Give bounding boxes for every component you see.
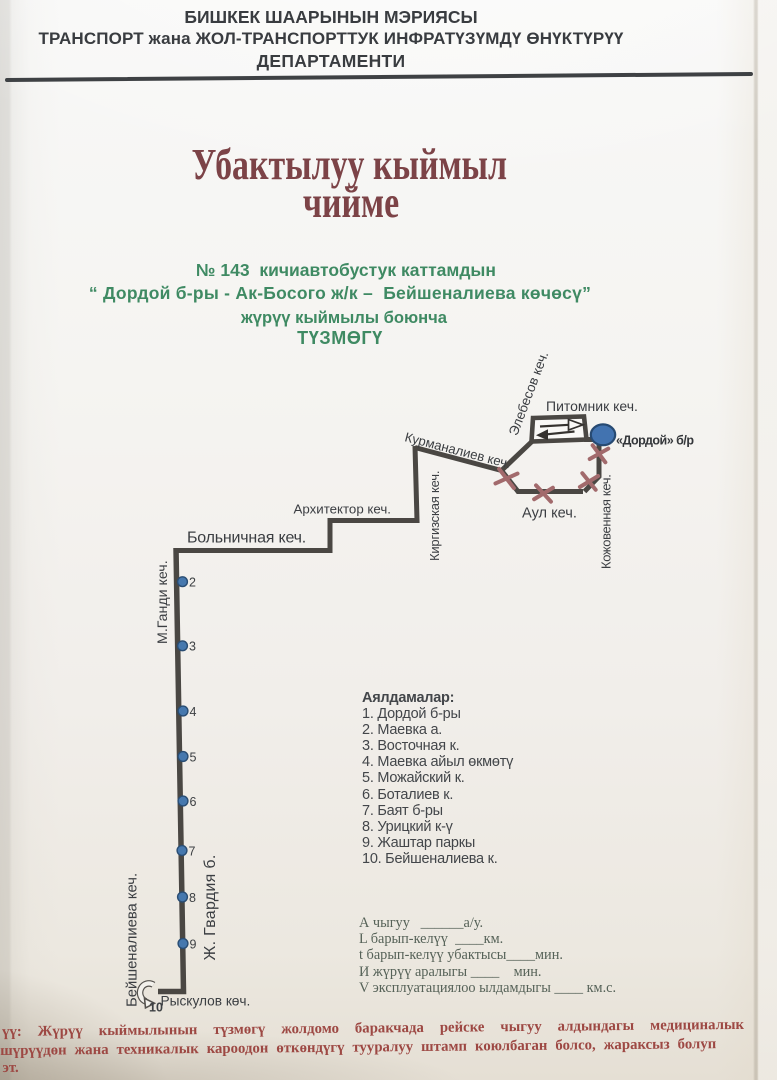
svg-text:Аул кеч.: Аул кеч. xyxy=(522,506,577,522)
svg-text:7: 7 xyxy=(189,845,196,859)
svg-text:10: 10 xyxy=(149,1001,163,1015)
svg-text:Архитектор кеч.: Архитектор кеч. xyxy=(294,502,391,517)
svg-text:Рыскулов көч.: Рыскулов көч. xyxy=(161,994,251,1009)
svg-text:М.Ганди кеч.: М.Ганди кеч. xyxy=(155,560,171,644)
svg-text:Ж. Гвардия б.: Ж. Гвардия б. xyxy=(202,854,219,960)
svg-text:9: 9 xyxy=(190,938,197,952)
svg-text:Бейшеналиева кеч.: Бейшеналиева кеч. xyxy=(125,873,141,1007)
svg-text:5: 5 xyxy=(190,751,197,765)
svg-text:8: 8 xyxy=(189,891,196,905)
svg-text:3: 3 xyxy=(189,640,196,654)
svg-text:«Дордой» б/р: «Дордой» б/р xyxy=(616,434,694,448)
svg-text:Питомник кеч.: Питомник кеч. xyxy=(546,398,638,414)
svg-text:Больничная кеч.: Больничная кеч. xyxy=(187,530,306,547)
svg-text:Киргизская кеч.: Киргизская кеч. xyxy=(427,471,442,561)
svg-text:2: 2 xyxy=(189,576,196,590)
svg-text:6: 6 xyxy=(190,795,197,809)
svg-text:Кожовенная кеч.: Кожовенная кеч. xyxy=(599,475,614,570)
svg-text:4: 4 xyxy=(190,705,197,719)
